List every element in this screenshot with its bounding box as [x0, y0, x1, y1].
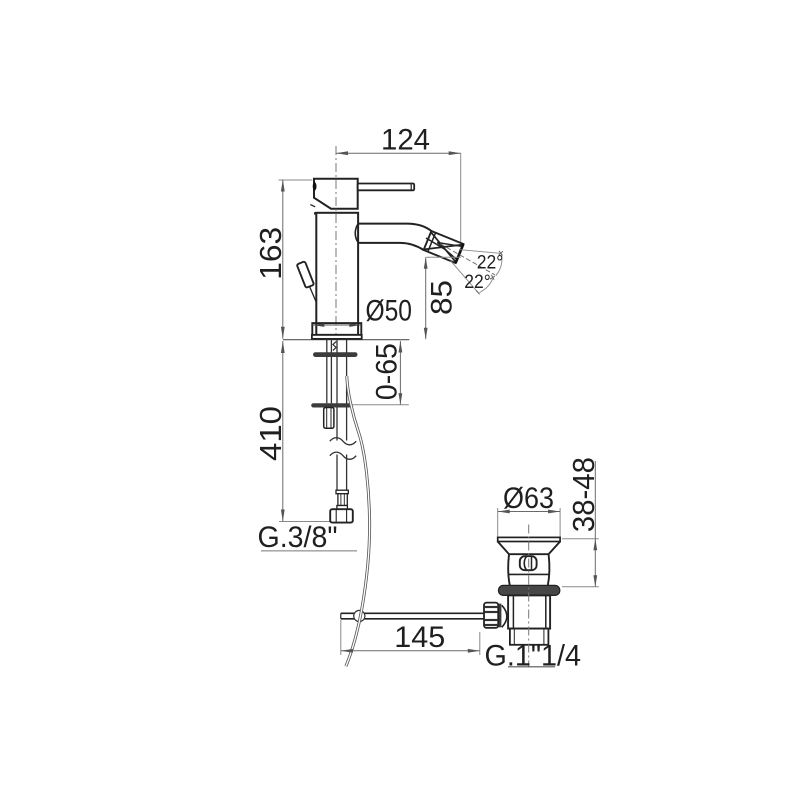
svg-text:38-48: 38-48 — [566, 457, 601, 532]
svg-text:410: 410 — [253, 406, 288, 461]
svg-text:G.1"1/4: G.1"1/4 — [485, 640, 582, 673]
svg-text:163: 163 — [253, 227, 288, 280]
svg-text:0-65: 0-65 — [370, 343, 403, 400]
svg-text:Ø63: Ø63 — [503, 482, 554, 515]
svg-text:85: 85 — [426, 280, 459, 315]
svg-text:124: 124 — [381, 124, 430, 157]
svg-text:145: 145 — [394, 621, 445, 654]
svg-text:G.3/8": G.3/8" — [258, 521, 338, 554]
svg-text:Ø50: Ø50 — [366, 295, 413, 328]
svg-text:22°: 22° — [464, 271, 491, 293]
